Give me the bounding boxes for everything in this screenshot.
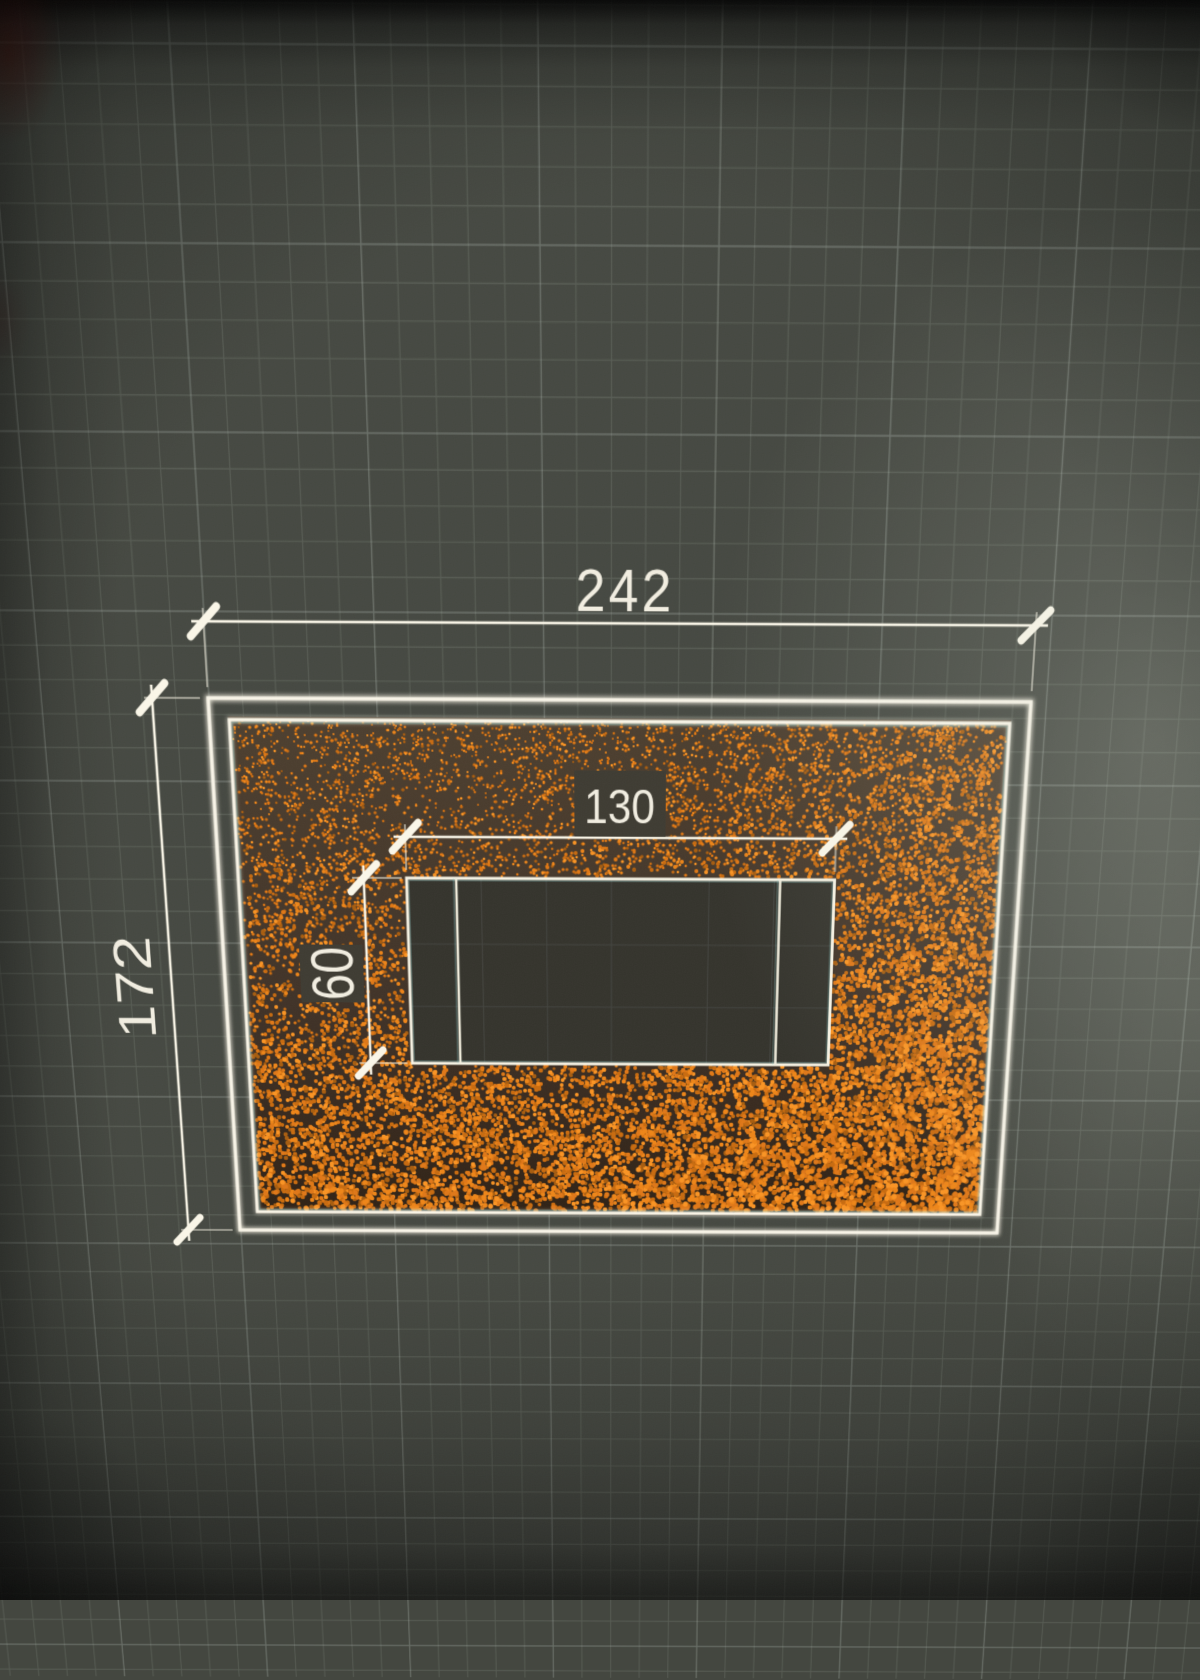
- svg-text:242: 242: [575, 558, 674, 625]
- svg-text:172: 172: [101, 936, 168, 1039]
- svg-text:60: 60: [299, 946, 367, 1000]
- svg-text:130: 130: [584, 779, 655, 834]
